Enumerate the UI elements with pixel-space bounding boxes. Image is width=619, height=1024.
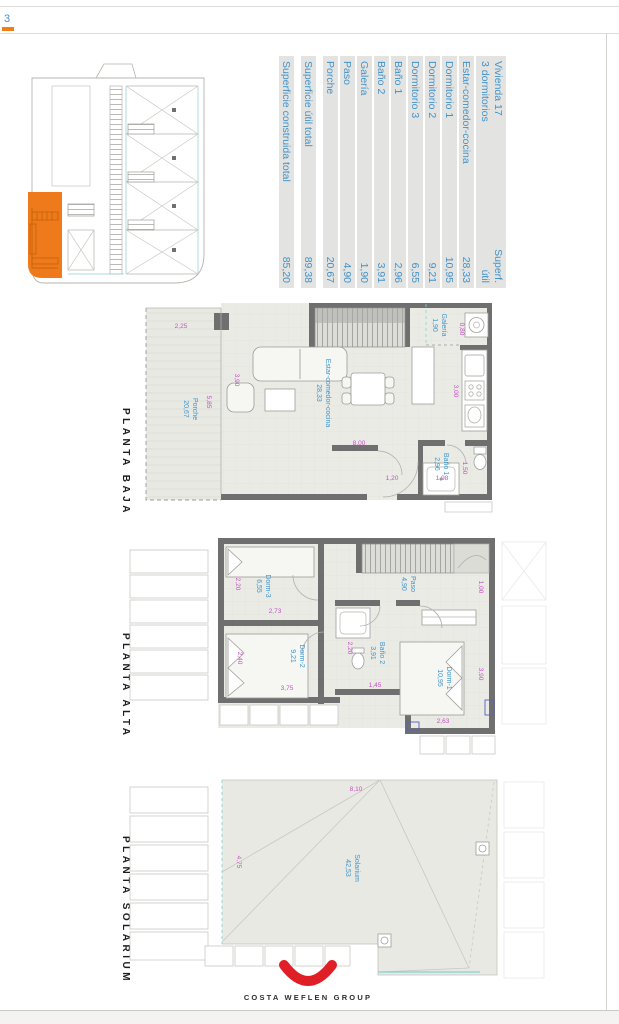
- table-row: Dormitorio 36,55: [408, 56, 423, 288]
- table-row: Baño 23,91: [374, 56, 389, 288]
- staircase: [315, 308, 405, 347]
- svg-text:1,90: 1,90: [431, 318, 438, 332]
- page-right-border: [606, 33, 607, 1010]
- table-row: Galería1,90: [357, 56, 372, 288]
- svg-text:3,91: 3,91: [369, 646, 376, 660]
- svg-text:8,10: 8,10: [350, 786, 363, 793]
- svg-text:2,25: 2,25: [175, 323, 188, 330]
- planta-baja-drawing: Porche 20,67 Estar-comedor-cocina 28,33 …: [145, 301, 497, 516]
- svg-text:2,96: 2,96: [433, 457, 440, 471]
- surface-summary-table: Vivienda 17 3 dormitorios Superf. útil E…: [273, 55, 505, 289]
- adjacent-unit-ghost: [502, 542, 546, 724]
- bed: [400, 642, 464, 715]
- total-util-row: Superficie útil total89,38: [301, 56, 316, 288]
- column-header-2: útil: [478, 249, 491, 283]
- washing-machine-icon: [465, 313, 488, 337]
- pergola-slats: [130, 550, 208, 700]
- plan-sheet-page: 3: [0, 0, 619, 1024]
- svg-text:Dorm-1: Dorm-1: [445, 666, 452, 689]
- toilet-icon: [474, 447, 486, 470]
- svg-text:1,00: 1,00: [477, 581, 484, 594]
- table-row: Baño 12,96: [391, 56, 406, 288]
- table-row: Estar-comedor-cocina28,33: [459, 56, 474, 288]
- svg-text:2,63: 2,63: [437, 718, 450, 725]
- table-row: Dormitorio 110,95: [442, 56, 457, 288]
- svg-text:10,95: 10,95: [436, 669, 443, 687]
- site-key-plan: [24, 62, 208, 290]
- svg-text:1,98: 1,98: [436, 475, 449, 482]
- total-construida-row: Superficie construida total85,20: [279, 56, 294, 288]
- svg-text:3,00: 3,00: [452, 385, 459, 398]
- coffee-table: [265, 389, 295, 411]
- svg-text:Solarium: Solarium: [353, 854, 360, 882]
- svg-text:9,21: 9,21: [289, 649, 296, 663]
- shower-icon: [336, 608, 370, 638]
- svg-text:8,00: 8,00: [353, 440, 366, 447]
- unit-grid: [126, 86, 198, 274]
- svg-text:4,90: 4,90: [400, 577, 407, 591]
- company-logo-arc: [276, 957, 340, 993]
- svg-text:3,75: 3,75: [281, 685, 294, 692]
- svg-text:Porche: Porche: [191, 398, 198, 420]
- svg-text:3,90: 3,90: [477, 668, 484, 681]
- svg-text:0,80: 0,80: [458, 323, 465, 336]
- unit-title: Vivienda 17: [491, 61, 504, 122]
- svg-text:Baño 1: Baño 1: [442, 453, 449, 475]
- planta-baja-title: PLANTA BAJA: [120, 408, 131, 516]
- svg-text:1,45: 1,45: [369, 682, 382, 689]
- svg-text:4,75: 4,75: [235, 856, 242, 869]
- table-row: Paso4,90: [340, 56, 355, 288]
- armchair: [227, 383, 254, 412]
- svg-text:1,50: 1,50: [461, 462, 468, 475]
- svg-text:2,73: 2,73: [269, 608, 282, 615]
- svg-text:Dorm-3: Dorm-3: [264, 574, 271, 597]
- svg-text:2,40: 2,40: [236, 652, 243, 665]
- table-header-row: Vivienda 17 3 dormitorios Superf. útil: [476, 56, 506, 288]
- svg-text:Baño 2: Baño 2: [378, 642, 385, 664]
- svg-text:3,90: 3,90: [233, 374, 240, 387]
- svg-text:Galería: Galería: [440, 314, 447, 337]
- adjacent-unit-ghost: [504, 782, 544, 978]
- upper-staircase: [362, 544, 489, 573]
- company-logo-text: COSTA WEFLEN GROUP: [222, 993, 394, 1002]
- planta-alta-drawing: Dorm-3 6,55 Dorm-2 9,21 Paso 4,90 Baño 2…: [128, 536, 548, 758]
- svg-text:42,53: 42,53: [344, 859, 351, 877]
- corner-orange-bar: [2, 27, 14, 31]
- svg-text:5,85: 5,85: [205, 396, 212, 409]
- table-row: Porche20,67: [323, 56, 338, 288]
- highlighted-unit: [28, 192, 62, 278]
- column-header: Superf.: [491, 249, 504, 283]
- table-row: Dormitorio 29,21: [425, 56, 440, 288]
- pergola-slats: [130, 787, 208, 960]
- svg-text:2,20: 2,20: [346, 642, 353, 655]
- svg-text:1,20: 1,20: [386, 475, 399, 482]
- toilet-icon: [352, 653, 364, 669]
- wardrobe: [422, 610, 476, 625]
- svg-text:28,33: 28,33: [315, 384, 322, 402]
- page-corner-mark: 3: [4, 13, 10, 25]
- svg-text:Estar-comedor-cocina: Estar-comedor-cocina: [324, 359, 331, 428]
- header-rule: [0, 33, 619, 34]
- svg-text:6,55: 6,55: [255, 579, 262, 593]
- bottom-margin-strip: [0, 1011, 619, 1024]
- svg-text:Paso: Paso: [409, 576, 416, 592]
- svg-text:2,20: 2,20: [234, 578, 241, 591]
- bed: [226, 634, 308, 698]
- svg-text:20,67: 20,67: [182, 400, 189, 418]
- svg-text:Dorm-2: Dorm-2: [298, 644, 305, 667]
- kitchen-island: [412, 347, 434, 404]
- unit-subtitle: 3 dormitorios: [478, 61, 491, 122]
- top-rule: [0, 6, 619, 7]
